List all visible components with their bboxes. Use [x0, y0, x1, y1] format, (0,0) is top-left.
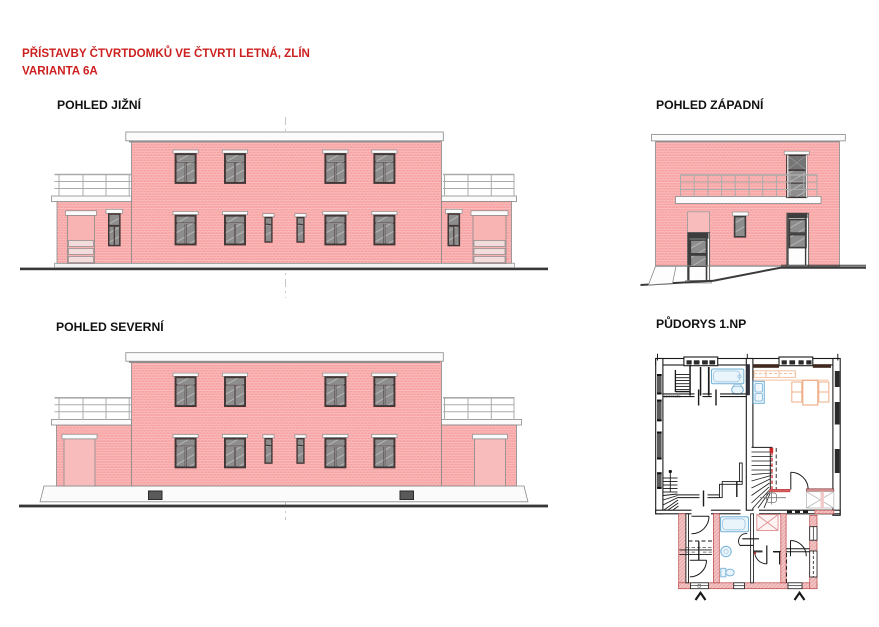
svg-text:POHLED JIŽNÍ: POHLED JIŽNÍ	[57, 97, 142, 112]
svg-text:POHLED ZÁPADNÍ: POHLED ZÁPADNÍ	[656, 97, 764, 112]
svg-text:PŮDORYS 1.NP: PŮDORYS 1.NP	[656, 315, 746, 331]
svg-text:VARIANTA 6A: VARIANTA 6A	[22, 65, 98, 78]
svg-text:PŘÍSTAVBY ČTVRTDOMKŮ VE ČTVRTI: PŘÍSTAVBY ČTVRTDOMKŮ VE ČTVRTI LETNÁ, ZL…	[22, 46, 310, 60]
svg-text:POHLED SEVERNÍ: POHLED SEVERNÍ	[56, 319, 164, 334]
